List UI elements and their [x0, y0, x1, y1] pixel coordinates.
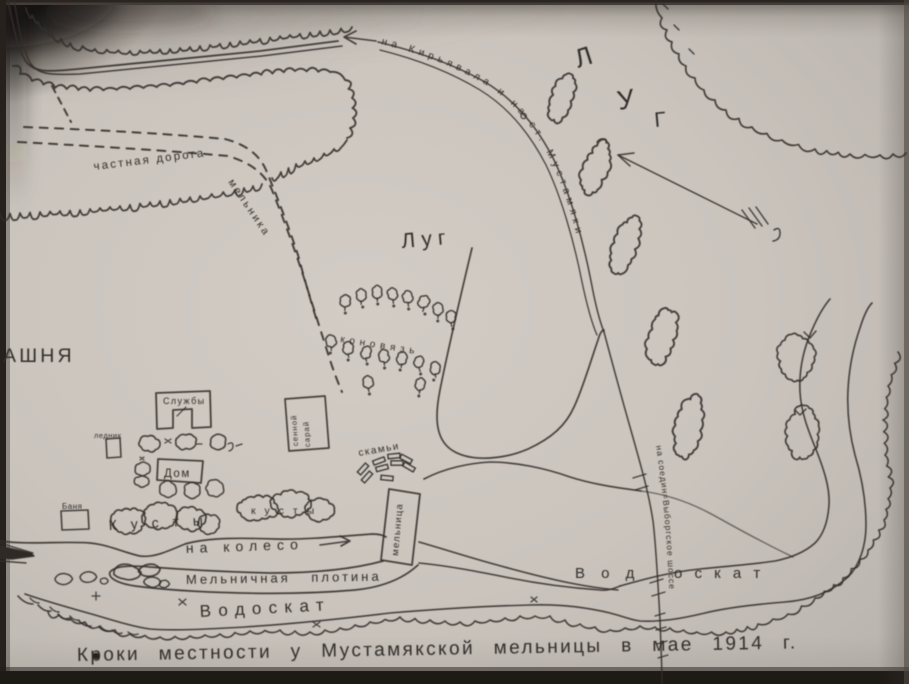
svg-text:к у с т ы: к у с т ы [251, 505, 317, 517]
svg-text:ледник: ледник [94, 431, 122, 440]
svg-text:АШНЯ: АШНЯ [3, 345, 75, 367]
svg-text:Дом: Дом [164, 468, 191, 480]
svg-text:В о д: В о д [575, 565, 640, 582]
svg-text:Баня: Баня [62, 502, 82, 511]
svg-text:Службы: Службы [163, 396, 206, 406]
svg-text:сенной: сенной [289, 414, 300, 446]
svg-text:о с к а т: о с к а т [674, 565, 764, 582]
svg-text:сарай: сарай [302, 421, 312, 448]
svg-text:Г: Г [653, 108, 666, 132]
svg-text:Луг: Луг [400, 226, 452, 253]
